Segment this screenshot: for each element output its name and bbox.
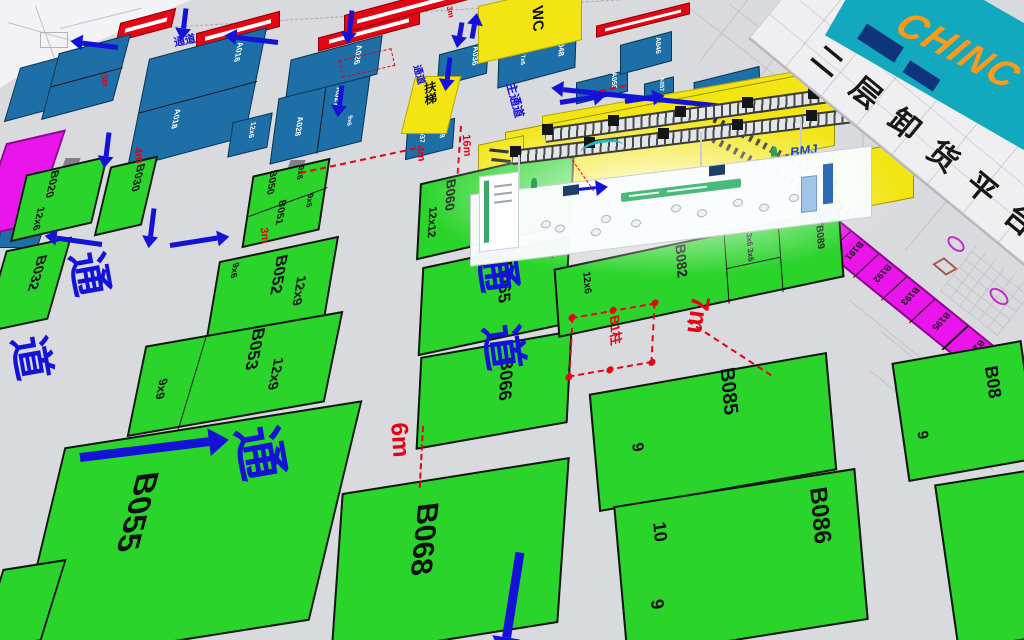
truss-connector	[608, 115, 619, 126]
booth-plant	[771, 146, 777, 157]
booth-b032[interactable]: B032	[0, 236, 72, 333]
booth-label: B051	[273, 199, 287, 226]
booth-size: 9	[914, 430, 930, 441]
direction-arrow	[470, 24, 477, 39]
booth-red[interactable]	[596, 2, 690, 37]
dim-label: 4m	[132, 147, 145, 164]
direction-arrow	[148, 208, 156, 236]
dim-label: 3m	[445, 6, 455, 19]
booth-label: B08	[982, 364, 1005, 399]
booth-screen	[563, 184, 579, 196]
booth-size: 9x6	[229, 262, 241, 280]
booth-label: B086	[805, 485, 834, 545]
booth-kiosk	[823, 163, 833, 204]
booth-b08x[interactable]: B08 9	[891, 340, 1024, 482]
direction-arrow	[104, 132, 112, 156]
aisle-char: 道	[5, 333, 56, 384]
wc-label: WC	[530, 4, 546, 33]
booth-label: B052	[266, 253, 289, 296]
booth-size: 9	[648, 598, 667, 611]
booth-label: A018	[169, 108, 181, 130]
booth-size: 12x9	[290, 274, 308, 307]
dim-label: 3m	[99, 73, 110, 87]
booth-size: 9x6	[304, 193, 314, 209]
aisle-char: 通	[228, 422, 291, 485]
truss-connector	[732, 119, 743, 130]
booth-body	[470, 145, 872, 266]
booth-label: B193	[899, 285, 921, 306]
truss-connector	[806, 110, 817, 121]
booth-size: 9x9	[153, 377, 169, 400]
aisle-char: 道	[477, 321, 529, 373]
booth-blue-a027-a028[interactable]: A027 A028 9x6	[270, 75, 371, 164]
booth-green[interactable]	[934, 467, 1024, 640]
banner-logo: CHINC	[888, 6, 1024, 95]
booth-plant	[531, 177, 537, 188]
booth-label: A046	[654, 36, 661, 55]
direction-arrow	[170, 236, 218, 248]
booth-b068[interactable]: B068	[330, 457, 569, 640]
booth-counter	[801, 175, 817, 213]
booth-wall-panel	[479, 172, 519, 253]
booth-size: 12x6	[247, 121, 256, 139]
direction-arrow	[457, 22, 464, 37]
truss-connector	[542, 124, 553, 135]
booth-size: 9x6	[345, 115, 352, 127]
booth-label: B020	[42, 169, 60, 199]
cad-ellipse	[944, 233, 967, 255]
booth-label: B068	[405, 501, 442, 578]
exhibition-floor-plan: A016 A018 A026 A027 A028 9x6 12x6 A037 A…	[0, 0, 1024, 640]
booth-size: 12x6	[30, 206, 46, 232]
booth-size: 12x9	[266, 356, 287, 391]
booth-size: 9	[628, 442, 645, 454]
truss-connector	[675, 106, 686, 117]
booth-label: B030	[128, 163, 146, 193]
truss-connector	[742, 97, 753, 108]
booth-b050-b051[interactable]: B050 9x6 B051 9x6	[241, 158, 330, 249]
truss-connector	[658, 128, 669, 139]
booth-label: A028	[293, 115, 304, 137]
booth-screen	[709, 164, 725, 176]
booth-size: 10	[650, 521, 670, 544]
booth-label: B032	[26, 253, 50, 292]
booth-label: B050	[264, 169, 278, 196]
dim-label: 6m	[386, 422, 412, 458]
booth-label: B085	[716, 366, 740, 417]
booth-signage	[621, 178, 741, 202]
column-label: B1柱	[608, 313, 623, 346]
cad-rect	[40, 32, 68, 48]
booth-label: B053	[242, 326, 268, 371]
booth-label: B055	[111, 470, 164, 554]
dim-label: 3m	[258, 227, 271, 244]
aisle-char: 通	[63, 249, 114, 300]
booth-label: B195	[930, 310, 952, 331]
booth-b055[interactable]: B055	[12, 400, 363, 640]
